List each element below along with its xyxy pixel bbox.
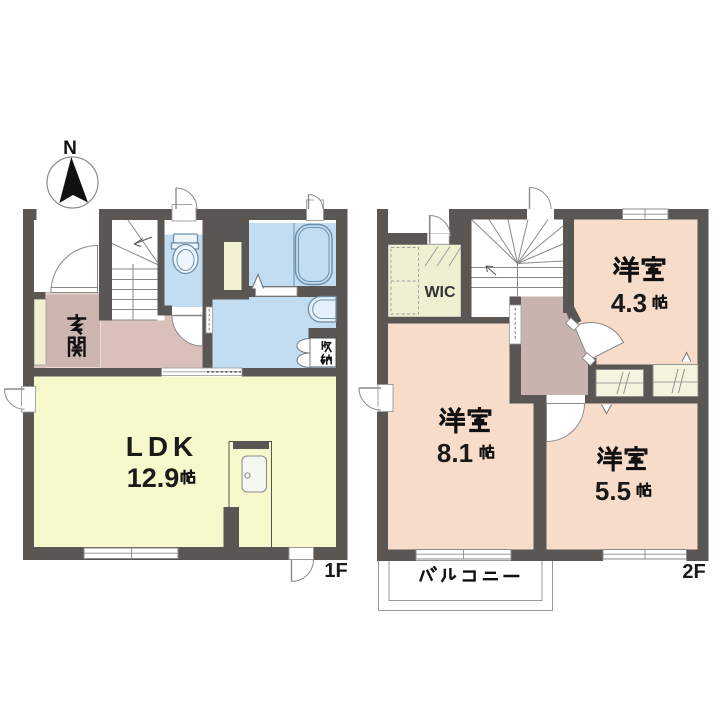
svg-text:5.5: 5.5 <box>595 476 631 506</box>
svg-text:1F: 1F <box>324 560 347 582</box>
svg-text:4.3: 4.3 <box>611 288 647 318</box>
svg-text:12.9: 12.9 <box>127 463 180 493</box>
svg-text:N: N <box>63 138 77 159</box>
svg-text:2F: 2F <box>682 561 705 583</box>
svg-text:WIC: WIC <box>424 284 456 301</box>
svg-text:LDK: LDK <box>126 431 199 462</box>
svg-text:8.1: 8.1 <box>437 438 473 468</box>
